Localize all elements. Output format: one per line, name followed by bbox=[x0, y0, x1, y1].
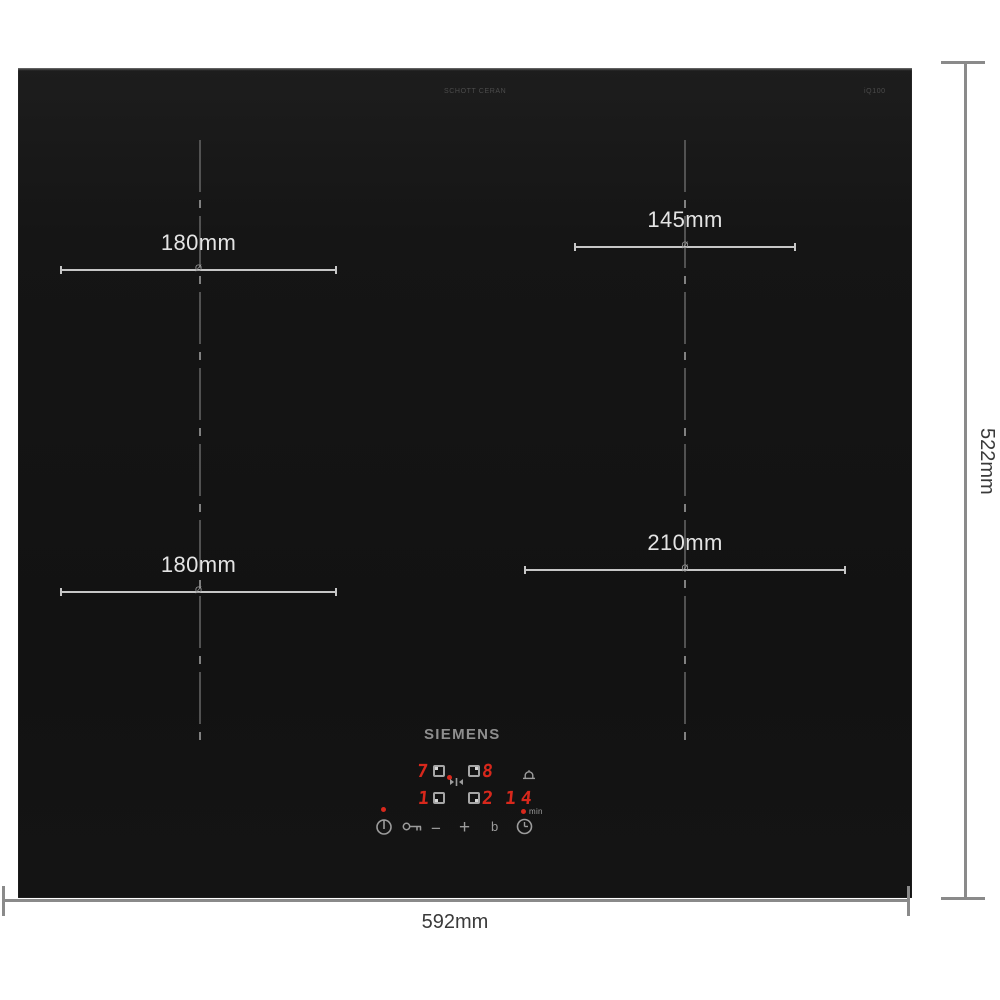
hob-surface bbox=[18, 68, 912, 898]
zone-diameter-label: 180mm bbox=[60, 230, 337, 256]
height-dimension-tick-top bbox=[941, 61, 985, 64]
width-dimension-tick-left bbox=[2, 886, 5, 916]
timer-display: 14 bbox=[504, 790, 538, 808]
zone-diameter-label: 210mm bbox=[524, 530, 846, 556]
zone-select-key-back-right bbox=[468, 765, 480, 777]
bridge-indicator-icon bbox=[450, 778, 463, 786]
width-dimension-line bbox=[4, 899, 910, 902]
zone-position-dot bbox=[475, 767, 478, 770]
zone-select-key-back-left bbox=[433, 765, 445, 777]
glass-print-center: SCHOTT CERAN bbox=[444, 88, 506, 95]
power-level-display-front-right: 2 bbox=[481, 790, 494, 808]
timer-unit-label: min bbox=[529, 808, 543, 816]
zone-diameter-label: 180mm bbox=[60, 552, 337, 578]
glass-print-right: iQ100 bbox=[864, 88, 886, 95]
height-dimension-line bbox=[964, 62, 967, 900]
child-lock-key-icon bbox=[402, 821, 422, 832]
zone-position-dot bbox=[435, 799, 438, 802]
diameter-symbol: Ø bbox=[60, 585, 337, 595]
width-dimension-tick-right bbox=[907, 886, 910, 916]
siemens-logo: SIEMENS bbox=[424, 726, 501, 743]
zone-position-dot bbox=[475, 799, 478, 802]
power-level-display-back-right: 8 bbox=[481, 763, 494, 781]
boost-button-label: b bbox=[491, 820, 498, 833]
zone-select-key-front-left bbox=[433, 792, 445, 804]
diameter-symbol: Ø bbox=[524, 563, 846, 573]
power-level-display-front-left: 1 bbox=[417, 790, 430, 808]
overall-width-label: 592mm bbox=[380, 911, 530, 934]
zone-position-dot bbox=[435, 767, 438, 770]
minus-button-label: − bbox=[431, 820, 441, 837]
height-dimension-tick-bottom bbox=[941, 897, 985, 900]
plus-button-label: + bbox=[459, 818, 470, 837]
power-level-display-back-left: 7 bbox=[416, 763, 429, 781]
diameter-symbol: Ø bbox=[60, 263, 337, 273]
power-active-dot bbox=[381, 807, 386, 812]
timer-active-dot bbox=[521, 809, 526, 814]
product-dimension-image: SCHOTT CERAN iQ100 180mm Ø 145mm Ø 180mm… bbox=[0, 0, 1000, 1000]
diameter-symbol: Ø bbox=[574, 240, 796, 250]
zone-select-key-front-right bbox=[468, 792, 480, 804]
zone-diameter-label: 145mm bbox=[574, 207, 796, 233]
overall-height-label: 522mm bbox=[975, 428, 998, 518]
alarm-bell-icon bbox=[522, 769, 536, 782]
power-icon bbox=[375, 818, 393, 836]
timer-clock-icon bbox=[516, 818, 533, 835]
